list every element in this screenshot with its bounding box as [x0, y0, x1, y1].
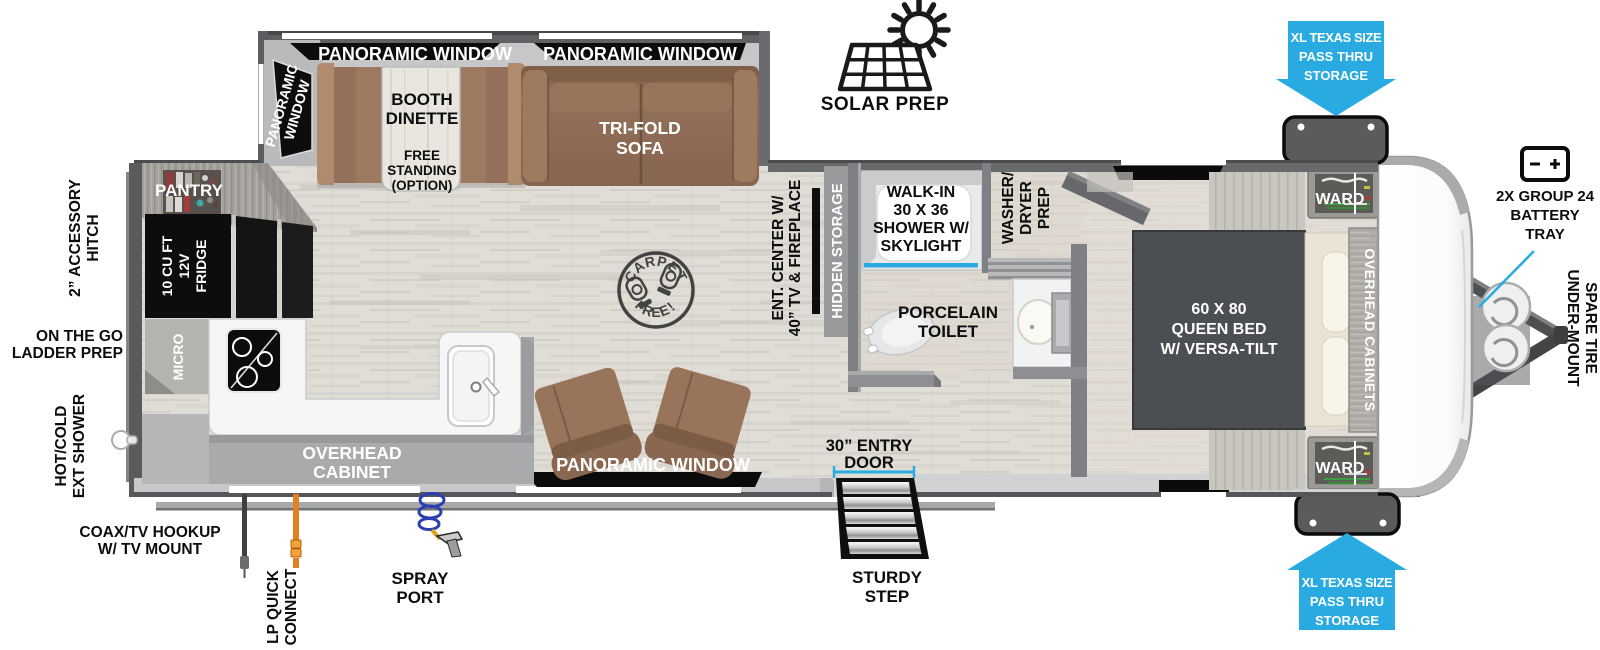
svg-text:W/ TV MOUNT: W/ TV MOUNT — [98, 541, 203, 558]
svg-text:BATTERY: BATTERY — [1510, 207, 1579, 224]
svg-text:TRI-FOLD: TRI-FOLD — [599, 118, 681, 138]
svg-text:PANORAMIC WINDOW: PANORAMIC WINDOW — [543, 44, 737, 64]
svg-text:SHOWER W/: SHOWER W/ — [873, 220, 970, 237]
svg-text:COAX/TV HOOKUP: COAX/TV HOOKUP — [79, 524, 220, 541]
svg-text:CABINET: CABINET — [313, 462, 391, 482]
svg-text:OVERHEAD: OVERHEAD — [302, 443, 401, 463]
svg-text:PANORAMIC WINDOW: PANORAMIC WINDOW — [556, 455, 750, 475]
svg-text:STORAGE: STORAGE — [1315, 613, 1379, 628]
svg-text:DOOR: DOOR — [844, 454, 894, 472]
svg-text:LP QUICK: LP QUICK — [265, 569, 282, 644]
svg-text:HITCH: HITCH — [85, 214, 102, 261]
svg-text:SOLAR PREP: SOLAR PREP — [821, 94, 950, 115]
svg-text:WASHER/: WASHER/ — [1000, 171, 1017, 244]
svg-text:W/ VERSA-TILT: W/ VERSA-TILT — [1160, 341, 1277, 358]
svg-text:TRAY: TRAY — [1525, 226, 1564, 243]
svg-text:10 CU FT: 10 CU FT — [159, 235, 175, 296]
svg-text:ENT. CENTER W/: ENT. CENTER W/ — [770, 195, 787, 321]
svg-text:FRIDGE: FRIDGE — [193, 240, 209, 293]
svg-text:XL TEXAS SIZE: XL TEXAS SIZE — [1291, 30, 1382, 45]
svg-text:DINETTE: DINETTE — [386, 109, 459, 128]
svg-text:PORT: PORT — [396, 588, 444, 607]
svg-text:FREE: FREE — [404, 148, 440, 163]
svg-text:WALK-IN: WALK-IN — [887, 184, 955, 201]
svg-text:WARD: WARD — [1316, 191, 1365, 208]
svg-text:HIDDEN STORAGE: HIDDEN STORAGE — [829, 183, 846, 319]
svg-text:PREP: PREP — [1036, 187, 1053, 229]
svg-text:TOILET: TOILET — [918, 322, 979, 341]
svg-text:OVERHEAD CABINETS: OVERHEAD CABINETS — [1362, 248, 1378, 411]
svg-text:STURDY: STURDY — [852, 568, 923, 587]
svg-text:SOFA: SOFA — [616, 138, 664, 158]
svg-text:40” TV & FIREPLACE: 40” TV & FIREPLACE — [787, 180, 804, 337]
svg-text:SPRAY: SPRAY — [391, 569, 449, 588]
svg-text:UNDER-MOUNT: UNDER-MOUNT — [1564, 269, 1581, 387]
svg-text:SPARE TIRE: SPARE TIRE — [1582, 282, 1599, 374]
svg-text:PANORAMIC WINDOW: PANORAMIC WINDOW — [318, 44, 512, 64]
svg-text:PASS THRU: PASS THRU — [1310, 594, 1384, 609]
svg-text:(OPTION): (OPTION) — [392, 178, 453, 193]
svg-text:QUEEN BED: QUEEN BED — [1171, 321, 1266, 338]
svg-text:60 X 80: 60 X 80 — [1191, 301, 1246, 318]
svg-text:LADDER PREP: LADDER PREP — [12, 345, 123, 362]
svg-text:PORCELAIN: PORCELAIN — [898, 303, 998, 322]
svg-text:EXT SHOWER: EXT SHOWER — [71, 394, 88, 498]
svg-text:XL TEXAS SIZE: XL TEXAS SIZE — [1302, 575, 1393, 590]
svg-text:PANTRY: PANTRY — [155, 181, 224, 200]
svg-text:2X GROUP 24: 2X GROUP 24 — [1496, 188, 1595, 205]
svg-text:WARD: WARD — [1316, 460, 1365, 477]
svg-text:BOOTH: BOOTH — [391, 90, 452, 109]
svg-text:ON THE GO: ON THE GO — [36, 328, 123, 345]
svg-text:30 X 36: 30 X 36 — [893, 202, 948, 219]
svg-text:30” ENTRY: 30” ENTRY — [826, 437, 913, 455]
svg-text:STORAGE: STORAGE — [1304, 68, 1368, 83]
svg-text:SKYLIGHT: SKYLIGHT — [881, 238, 962, 255]
svg-text:STANDING: STANDING — [387, 163, 457, 178]
svg-text:HOT/COLD: HOT/COLD — [53, 406, 70, 487]
svg-text:2” ACCESSORY: 2” ACCESSORY — [67, 178, 84, 296]
svg-text:STEP: STEP — [865, 587, 909, 606]
svg-text:MICRO: MICRO — [170, 334, 186, 381]
svg-text:CONNECT: CONNECT — [283, 568, 300, 645]
svg-text:PASS THRU: PASS THRU — [1299, 49, 1373, 64]
svg-text:DRYER: DRYER — [1018, 181, 1035, 235]
svg-text:12V: 12V — [176, 253, 192, 279]
